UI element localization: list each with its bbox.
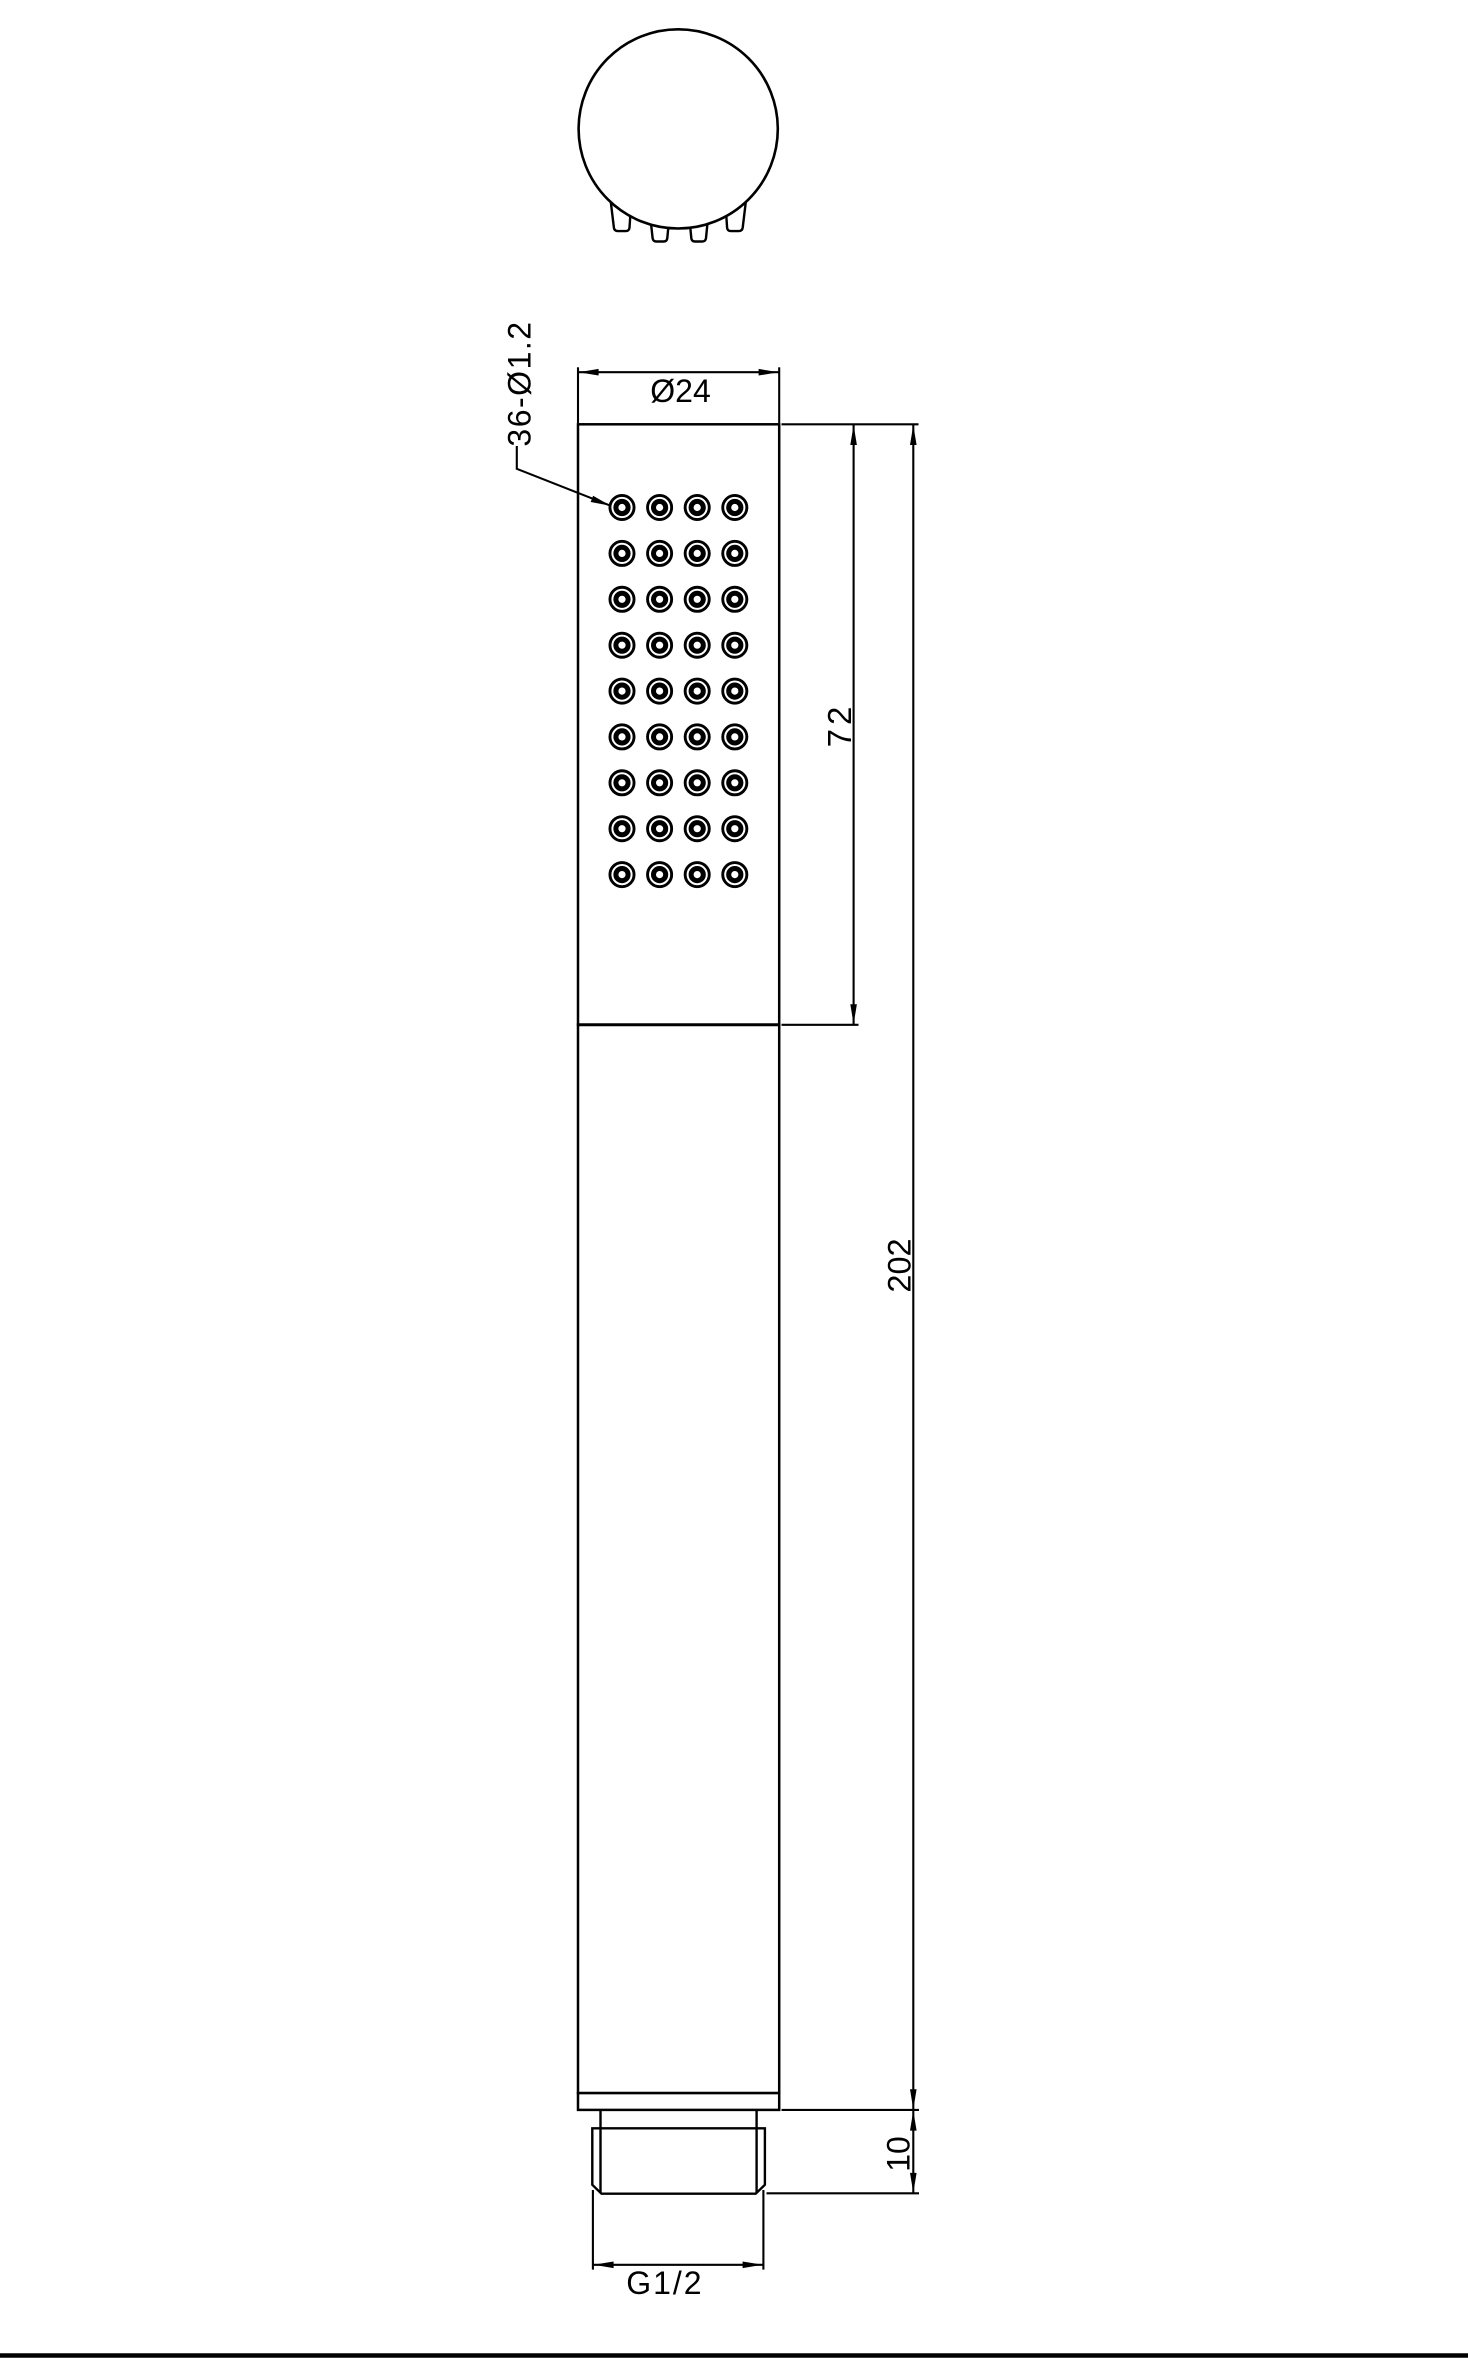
svg-text:G1/2: G1/2 <box>626 2265 703 2301</box>
svg-text:10: 10 <box>881 2136 917 2172</box>
svg-text:36-Ø1.2: 36-Ø1.2 <box>502 320 538 446</box>
svg-text:Ø24: Ø24 <box>650 373 710 409</box>
svg-text:202: 202 <box>882 1238 918 1292</box>
svg-text:72: 72 <box>821 703 858 748</box>
